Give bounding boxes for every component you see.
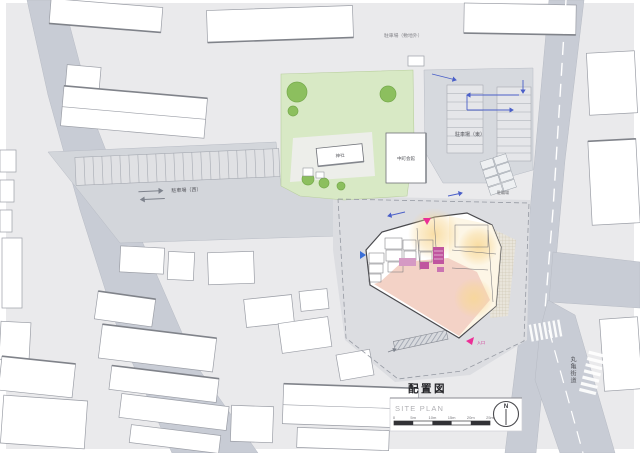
- parking-west-label: 駐車場（西）: [171, 186, 201, 194]
- scale-tick: 10m: [429, 415, 437, 420]
- drawing-title-en: SITE PLAN: [395, 404, 444, 413]
- drawing-title-jp: 配置図: [408, 383, 447, 395]
- magenta-room: [437, 267, 444, 272]
- building-footprint: [0, 210, 12, 232]
- building-footprint: [0, 180, 14, 202]
- building-footprint: [167, 251, 194, 280]
- building-footprint: [588, 139, 640, 225]
- scale-bar-segment: [471, 421, 490, 425]
- building-footprint: [0, 395, 87, 449]
- building-footprint: [278, 317, 332, 354]
- scale-tick: 5m: [410, 415, 416, 420]
- site-plan-svg: 駐車場（西） 駐車場（東） 駐車場（敷地外） 中町会館 神社 駐輪場 丸亀街道 …: [0, 0, 640, 453]
- building-footprint: [600, 317, 640, 391]
- magenta-room: [420, 262, 429, 269]
- entrance-label: 入口: [477, 340, 485, 345]
- park-small-structure: [316, 172, 324, 178]
- warm-glow: [454, 278, 494, 318]
- community-hall-label: 中町会館: [397, 155, 415, 162]
- building-footprint: [336, 349, 374, 381]
- building-footprint: [0, 321, 31, 361]
- stair-core: [433, 247, 444, 264]
- north-compass: N: [494, 402, 519, 427]
- warm-glow: [458, 226, 498, 266]
- building-footprint: [299, 289, 329, 312]
- building-footprint: [297, 427, 390, 450]
- building-footprint: [408, 56, 424, 66]
- parking-east-label: 駐車場（東）: [455, 131, 485, 138]
- scale-bar-segment: [432, 421, 451, 425]
- scale-bar-segment: [394, 421, 413, 425]
- building-footprint: [230, 405, 273, 442]
- building-footprint: [0, 150, 16, 172]
- magenta-room: [399, 258, 416, 266]
- building-footprint: [207, 251, 254, 285]
- building-footprint: [206, 5, 353, 42]
- road-east-branch: [549, 252, 640, 308]
- park-small-structure: [303, 168, 313, 176]
- bike-parking-label: 駐輪場: [497, 189, 509, 195]
- compass-north-label: N: [504, 404, 508, 410]
- building-footprint: [119, 246, 164, 274]
- building-footprint: [464, 3, 577, 35]
- scale-tick: 20m: [467, 415, 475, 420]
- park: [281, 70, 426, 200]
- site-plan-drawing: 駐車場（西） 駐車場（東） 駐車場（敷地外） 中町会館 神社 駐輪場 丸亀街道 …: [0, 0, 640, 453]
- building-footprint: [2, 238, 22, 308]
- parking-offsite-label: 駐車場（敷地外）: [384, 32, 422, 39]
- building-footprint: [586, 51, 637, 115]
- road-name-label: 丸亀街道: [569, 355, 576, 384]
- scale-tick: 15m: [448, 415, 456, 420]
